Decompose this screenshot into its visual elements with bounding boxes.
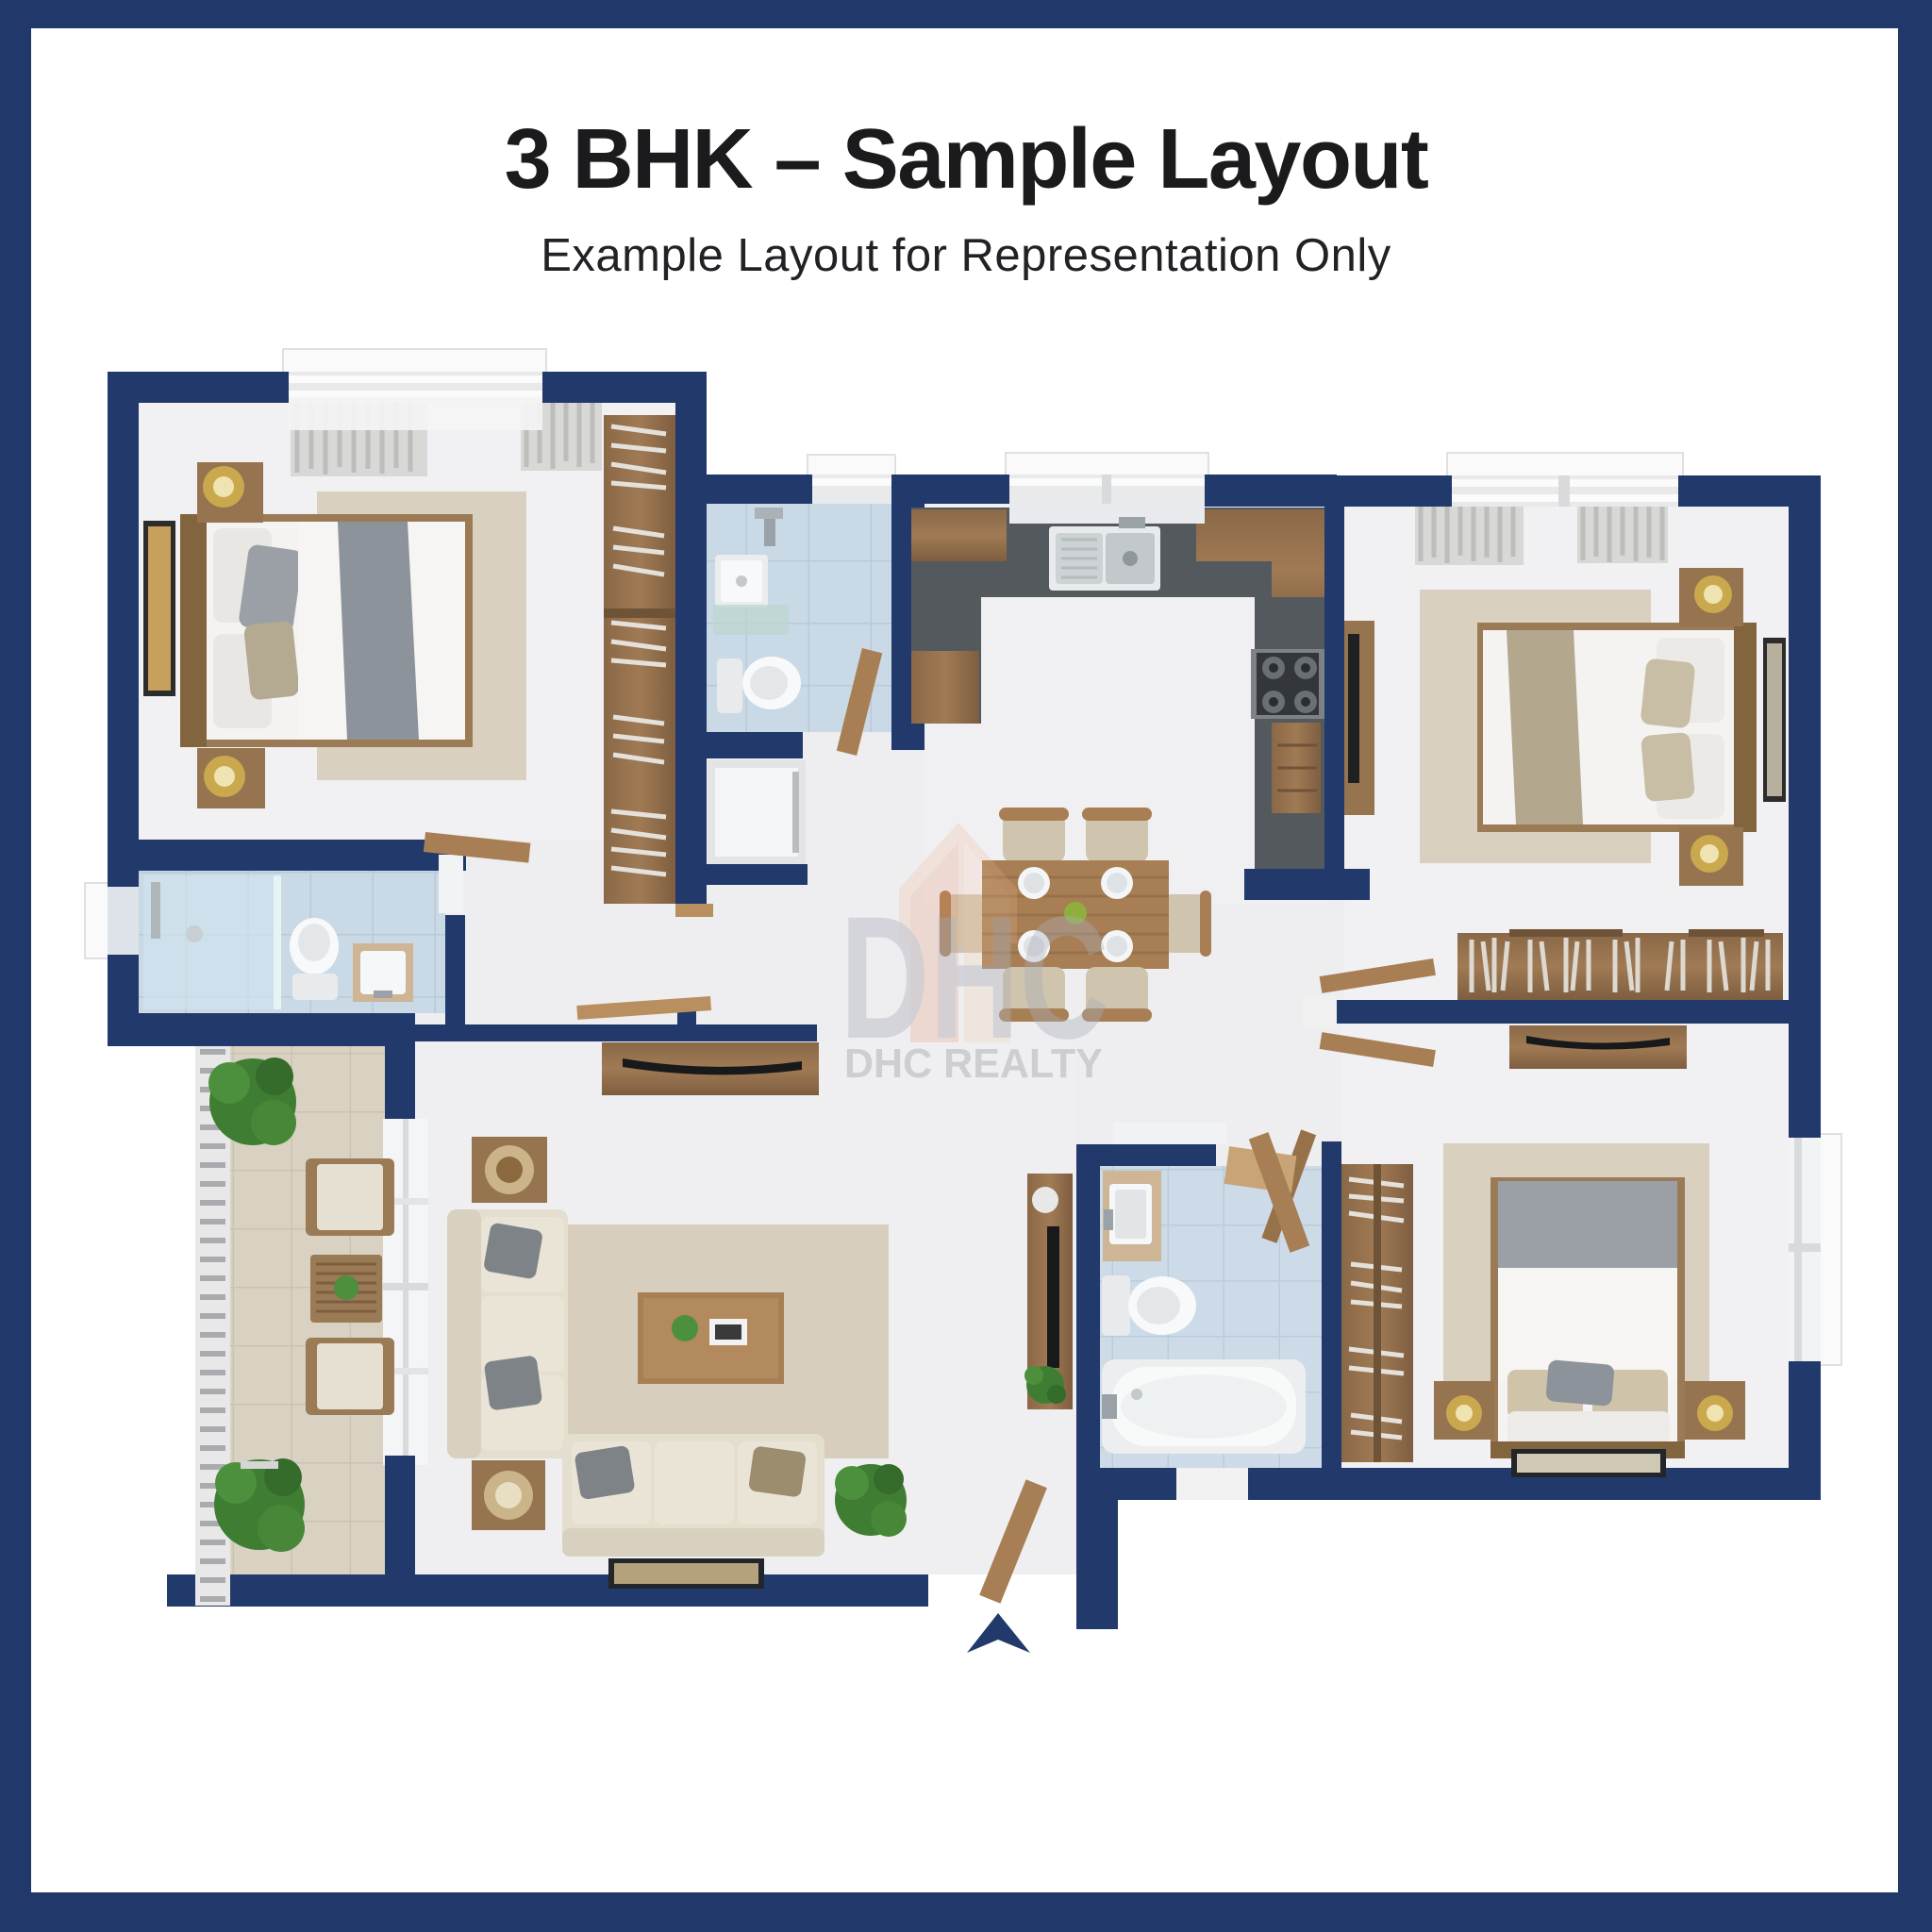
svg-text:DHC REALTY: DHC REALTY [844, 1041, 1103, 1087]
svg-text:Example Layout for Representat: Example Layout for Representation Only [541, 230, 1391, 281]
svg-text:3 BHK – Sample Layout: 3 BHK – Sample Layout [505, 112, 1428, 207]
